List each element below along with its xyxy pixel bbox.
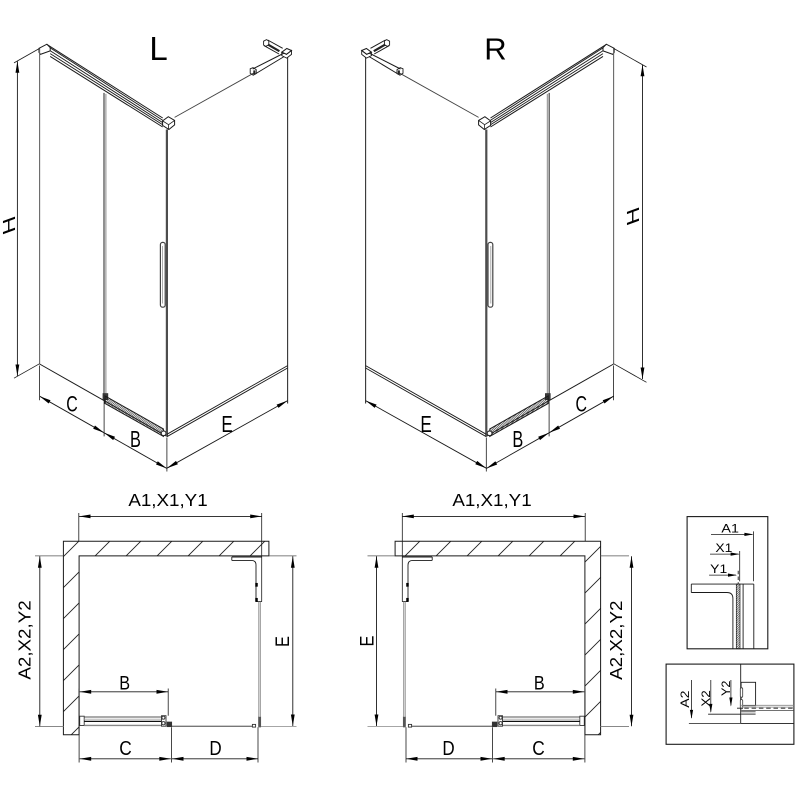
svg-text:Y1: Y1 [710, 563, 727, 576]
svg-text:A2,X2,Y2: A2,X2,Y2 [15, 600, 35, 679]
svg-text:X1: X1 [715, 542, 732, 555]
svg-text:H: H [0, 213, 19, 237]
svg-text:C: C [66, 391, 78, 416]
svg-text:C: C [532, 738, 545, 760]
svg-text:E: E [272, 636, 294, 647]
svg-text:B: B [512, 426, 523, 452]
svg-text:H: H [623, 204, 642, 228]
svg-text:R: R [484, 32, 506, 67]
svg-text:B: B [534, 672, 545, 694]
svg-text:A1,X1,Y1: A1,X1,Y1 [128, 490, 207, 510]
svg-text:C: C [575, 391, 587, 416]
svg-text:E: E [420, 411, 431, 437]
svg-text:A1: A1 [721, 523, 739, 536]
svg-text:D: D [209, 738, 221, 760]
svg-text:E: E [356, 635, 378, 646]
svg-text:D: D [442, 738, 454, 760]
svg-text:A2,X2,Y2: A2,X2,Y2 [606, 601, 626, 680]
svg-text:E: E [221, 411, 232, 437]
svg-text:B: B [119, 672, 130, 694]
svg-text:A1,X1,Y1: A1,X1,Y1 [452, 490, 531, 510]
svg-text:L: L [149, 30, 167, 67]
svg-text:B: B [130, 426, 141, 452]
svg-text:A2: A2 [678, 690, 692, 708]
svg-text:C: C [119, 738, 132, 760]
